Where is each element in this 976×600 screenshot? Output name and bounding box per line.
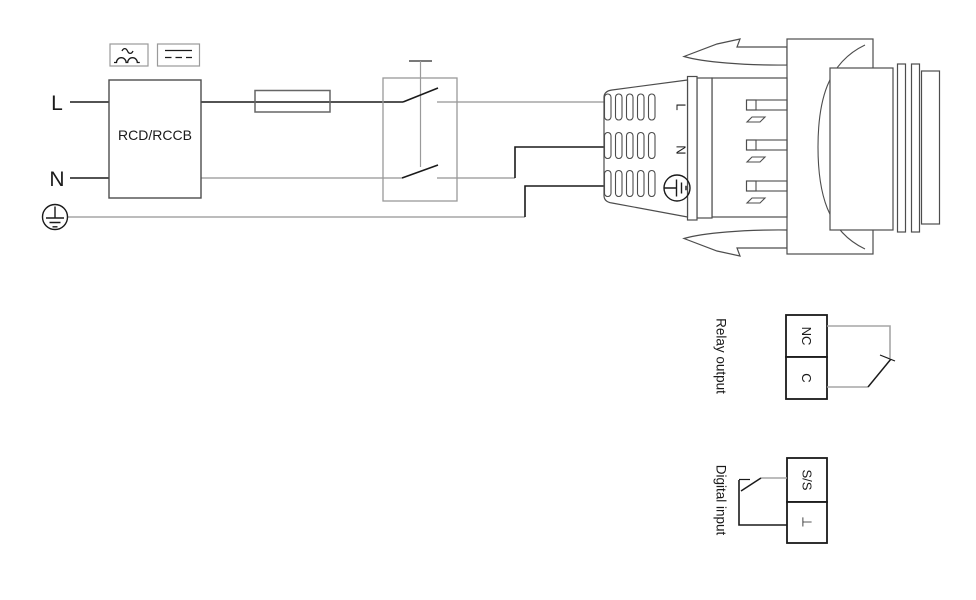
plug: L N [604,39,940,256]
plug-oring-2 [912,64,920,232]
plug-barrel [830,68,893,230]
wire-earth-jog [525,186,604,217]
terminal-ground-label: ⊥ [800,516,815,527]
switch-icon [383,61,457,201]
nc-contact-icon [827,326,895,387]
plug-collar-band-2 [697,78,712,218]
plug-neutral-label: N [674,145,689,154]
earth-icon [43,205,68,230]
plug-oring-1 [898,64,906,232]
plug-top-latch [684,39,787,65]
rcd-label: RCD/RCCB [118,127,192,143]
input-switch-icon [739,478,787,525]
relay-output-section: Relay output NC C [714,315,896,399]
terminal-nc-label: NC [799,327,814,346]
plug-end-cap [922,71,940,224]
wire-neutral-jog [515,147,604,178]
rcd-box: RCD/RCCB [109,80,201,198]
line-label: L [51,92,63,115]
smooth-dc-icon [158,44,200,66]
pulsating-dc-icon [110,44,148,66]
terminal-ss-label: S/S [800,470,815,491]
digital-input-section: Digital input S/S ⊥ [714,458,828,543]
plug-pin-face [712,78,787,217]
plug-bottom-latch [684,230,787,256]
neutral-label: N [49,168,64,191]
digital-input-label: Digital input [714,465,729,536]
wiring-diagram: L N RCD/RCCB [0,0,976,600]
plug-line-label: L [674,103,689,110]
terminal-c-label: C [799,373,814,382]
relay-output-label: Relay output [714,318,729,394]
